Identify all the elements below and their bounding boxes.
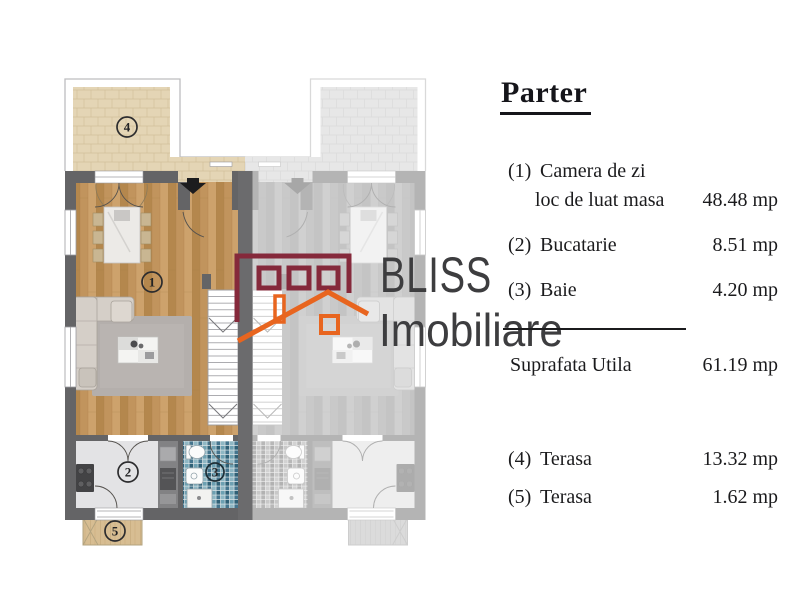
floor-plan-drawing: 4 1 2 3 5 BLISS [0, 0, 800, 600]
left-unit [65, 79, 246, 545]
coffee-table [118, 337, 158, 363]
svg-text:5: 5 [112, 524, 119, 539]
logo-brand-text: BLISS [380, 247, 492, 303]
terrace-top-floor [73, 87, 170, 171]
svg-text:1: 1 [149, 275, 156, 290]
stove [76, 464, 94, 492]
svg-text:2: 2 [125, 465, 132, 480]
kitchen-counter [158, 441, 178, 508]
entry-walkway [170, 157, 246, 172]
party-wall [238, 171, 253, 520]
staircase [208, 290, 238, 425]
floor-plan-page: 4 1 2 3 5 BLISS [0, 0, 800, 600]
svg-text:3: 3 [212, 465, 219, 480]
svg-text:4: 4 [124, 120, 131, 135]
